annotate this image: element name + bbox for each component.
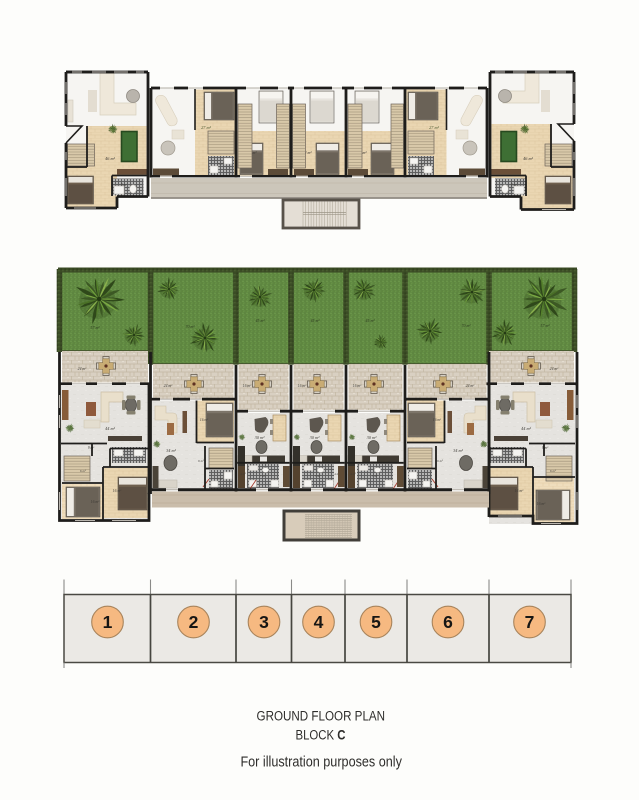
svg-text:6 m²: 6 m² [80, 469, 87, 473]
svg-text:5 m²: 5 m² [217, 477, 223, 481]
svg-text:6: 6 [443, 612, 453, 632]
svg-text:16 m²: 16 m² [200, 418, 209, 422]
svg-text:7 m²: 7 m² [260, 474, 266, 478]
svg-text:16 m²: 16 m² [113, 489, 122, 493]
svg-text:46 m²: 46 m² [105, 156, 115, 161]
svg-text:24 m²: 24 m² [550, 367, 559, 371]
svg-text:44 m²: 44 m² [105, 426, 115, 431]
svg-text:7 m²: 7 m² [315, 474, 321, 478]
svg-text:45 m²: 45 m² [365, 318, 375, 323]
svg-text:44 m²: 44 m² [521, 426, 531, 431]
svg-text:70 m²: 70 m² [185, 324, 195, 329]
svg-text:4 m²: 4 m² [350, 472, 356, 476]
svg-text:70 m²: 70 m² [461, 323, 471, 328]
svg-text:46 m²: 46 m² [523, 156, 533, 161]
svg-text:27 m²: 27 m² [429, 125, 439, 130]
svg-text:6 m²: 6 m² [198, 459, 204, 463]
svg-text:4: 4 [314, 612, 324, 632]
svg-text:4 m²: 4 m² [240, 472, 246, 476]
svg-text:24 m²: 24 m² [164, 384, 173, 388]
svg-text:6 m²: 6 m² [437, 459, 443, 463]
svg-text:24 m²: 24 m² [78, 367, 87, 371]
svg-text:45 m²: 45 m² [310, 318, 320, 323]
svg-text:5 m²: 5 m² [418, 162, 424, 166]
svg-text:16 m²: 16 m² [298, 384, 307, 388]
svg-text:57 m²: 57 m² [90, 325, 100, 330]
svg-text:1: 1 [103, 612, 113, 632]
svg-text:16 m²: 16 m² [353, 384, 362, 388]
svg-text:7: 7 [525, 612, 535, 632]
svg-text:57 m²: 57 m² [540, 323, 550, 328]
svg-text:34 m²: 34 m² [453, 448, 463, 453]
svg-text:For illustration purposes only: For illustration purposes only [240, 754, 402, 771]
svg-text:30 m²: 30 m² [367, 435, 377, 440]
svg-text:16 m²: 16 m² [515, 489, 524, 493]
svg-text:6 m²: 6 m² [505, 456, 512, 460]
svg-text:5: 5 [371, 612, 381, 632]
svg-text:8 m²: 8 m² [511, 183, 518, 187]
svg-text:27 m²: 27 m² [201, 125, 211, 130]
svg-text:8 m²: 8 m² [121, 183, 128, 187]
svg-text:34 m²: 34 m² [166, 448, 176, 453]
svg-text:16 m²: 16 m² [243, 384, 252, 388]
svg-text:16 m²: 16 m² [537, 502, 546, 506]
svg-text:7 m²: 7 m² [372, 474, 378, 478]
svg-text:30 m²: 30 m² [255, 435, 265, 440]
svg-text:9 m²: 9 m² [542, 446, 549, 450]
svg-text:24 m²: 24 m² [466, 384, 475, 388]
svg-text:BLOCK C: BLOCK C [296, 728, 346, 744]
svg-text:GROUND FLOOR PLAN: GROUND FLOOR PLAN [257, 709, 386, 725]
svg-text:16 m²: 16 m² [91, 500, 100, 504]
svg-text:5 m²: 5 m² [418, 477, 424, 481]
svg-text:30 m²: 30 m² [310, 435, 320, 440]
svg-text:16 m²: 16 m² [433, 418, 442, 422]
svg-text:6 m²: 6 m² [125, 456, 132, 460]
svg-text:6 m²: 6 m² [550, 469, 557, 473]
svg-text:45 m²: 45 m² [255, 318, 265, 323]
svg-text:2: 2 [189, 612, 199, 632]
svg-text:5 m²: 5 m² [218, 162, 224, 166]
svg-text:3: 3 [259, 612, 269, 632]
